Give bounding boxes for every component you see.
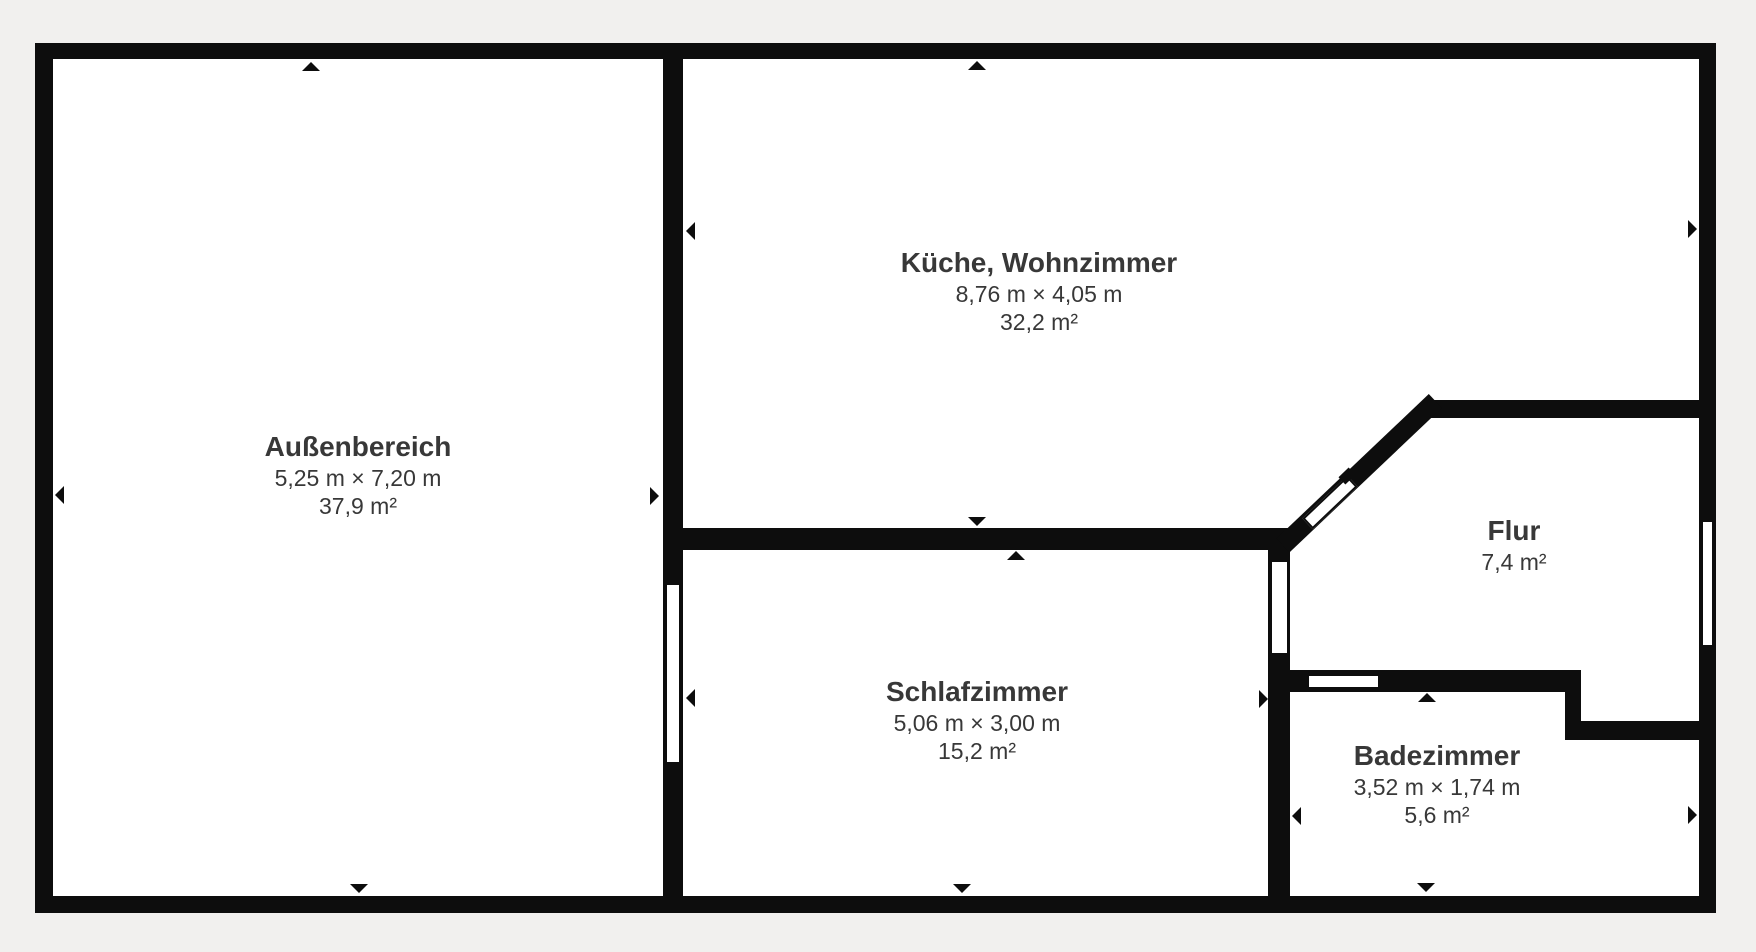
room-dimensions: 8,76 m × 4,05 m: [901, 280, 1177, 308]
door-flur-badezimmer[interactable]: [1307, 674, 1380, 689]
room-area: 5,6 m²: [1354, 801, 1521, 829]
marker-arrow-right-icon: [1259, 690, 1268, 708]
marker-arrow-down-icon: [350, 884, 368, 893]
marker-arrow-up-icon: [302, 62, 320, 71]
marker-arrow-right-icon: [650, 487, 659, 505]
room-name: Außenbereich: [265, 430, 452, 464]
room-name: Schlafzimmer: [886, 675, 1068, 709]
room-area: 15,2 m²: [886, 737, 1068, 765]
room-kueche-wohnzimmer[interactable]: [683, 59, 1699, 400]
label-badezimmer: Badezimmer 3,52 m × 1,74 m 5,6 m²: [1354, 739, 1521, 829]
wall-aussenbereich-divider: [663, 59, 683, 896]
wall-kueche-schlafzimmer: [683, 528, 1290, 550]
label-flur: Flur 7,4 m²: [1481, 514, 1546, 576]
window-flur[interactable]: [1701, 522, 1714, 645]
label-aussenbereich: Außenbereich 5,25 m × 7,20 m 37,9 m²: [265, 430, 452, 520]
wall-step-horizontal: [1581, 721, 1699, 740]
door-schlafzimmer-flur[interactable]: [1272, 562, 1287, 653]
marker-arrow-left-icon: [686, 689, 695, 707]
label-kueche-wohnzimmer: Küche, Wohnzimmer 8,76 m × 4,05 m 32,2 m…: [901, 246, 1177, 336]
room-name: Küche, Wohnzimmer: [901, 246, 1177, 280]
marker-arrow-right-icon: [1688, 220, 1697, 238]
wall-outer-left: [35, 43, 53, 913]
room-area: 7,4 m²: [1481, 548, 1546, 576]
room-area: 32,2 m²: [901, 308, 1177, 336]
wall-outer-bottom: [35, 896, 1716, 913]
window-schlafzimmer[interactable]: [665, 585, 681, 762]
marker-arrow-left-icon: [686, 222, 695, 240]
room-dimensions: 5,06 m × 3,00 m: [886, 709, 1068, 737]
wall-step-vertical: [1565, 692, 1581, 740]
room-dimensions: 5,25 m × 7,20 m: [265, 464, 452, 492]
room-name: Badezimmer: [1354, 739, 1521, 773]
wall-outer-right: [1699, 43, 1716, 913]
marker-arrow-down-icon: [968, 517, 986, 526]
room-dimensions: 3,52 m × 1,74 m: [1354, 773, 1521, 801]
marker-arrow-up-icon: [968, 61, 986, 70]
marker-arrow-up-icon: [1007, 551, 1025, 560]
marker-arrow-down-icon: [1417, 883, 1435, 892]
label-schlafzimmer: Schlafzimmer 5,06 m × 3,00 m 15,2 m²: [886, 675, 1068, 765]
marker-arrow-left-icon: [1292, 807, 1301, 825]
marker-arrow-right-icon: [1688, 806, 1697, 824]
wall-flur-top: [1424, 400, 1699, 418]
marker-arrow-left-icon: [55, 486, 64, 504]
wall-outer-top: [35, 43, 1716, 59]
room-name: Flur: [1481, 514, 1546, 548]
marker-arrow-down-icon: [953, 884, 971, 893]
room-area: 37,9 m²: [265, 492, 452, 520]
marker-arrow-up-icon: [1418, 693, 1436, 702]
floor-plan: Außenbereich 5,25 m × 7,20 m 37,9 m² Küc…: [0, 0, 1756, 952]
